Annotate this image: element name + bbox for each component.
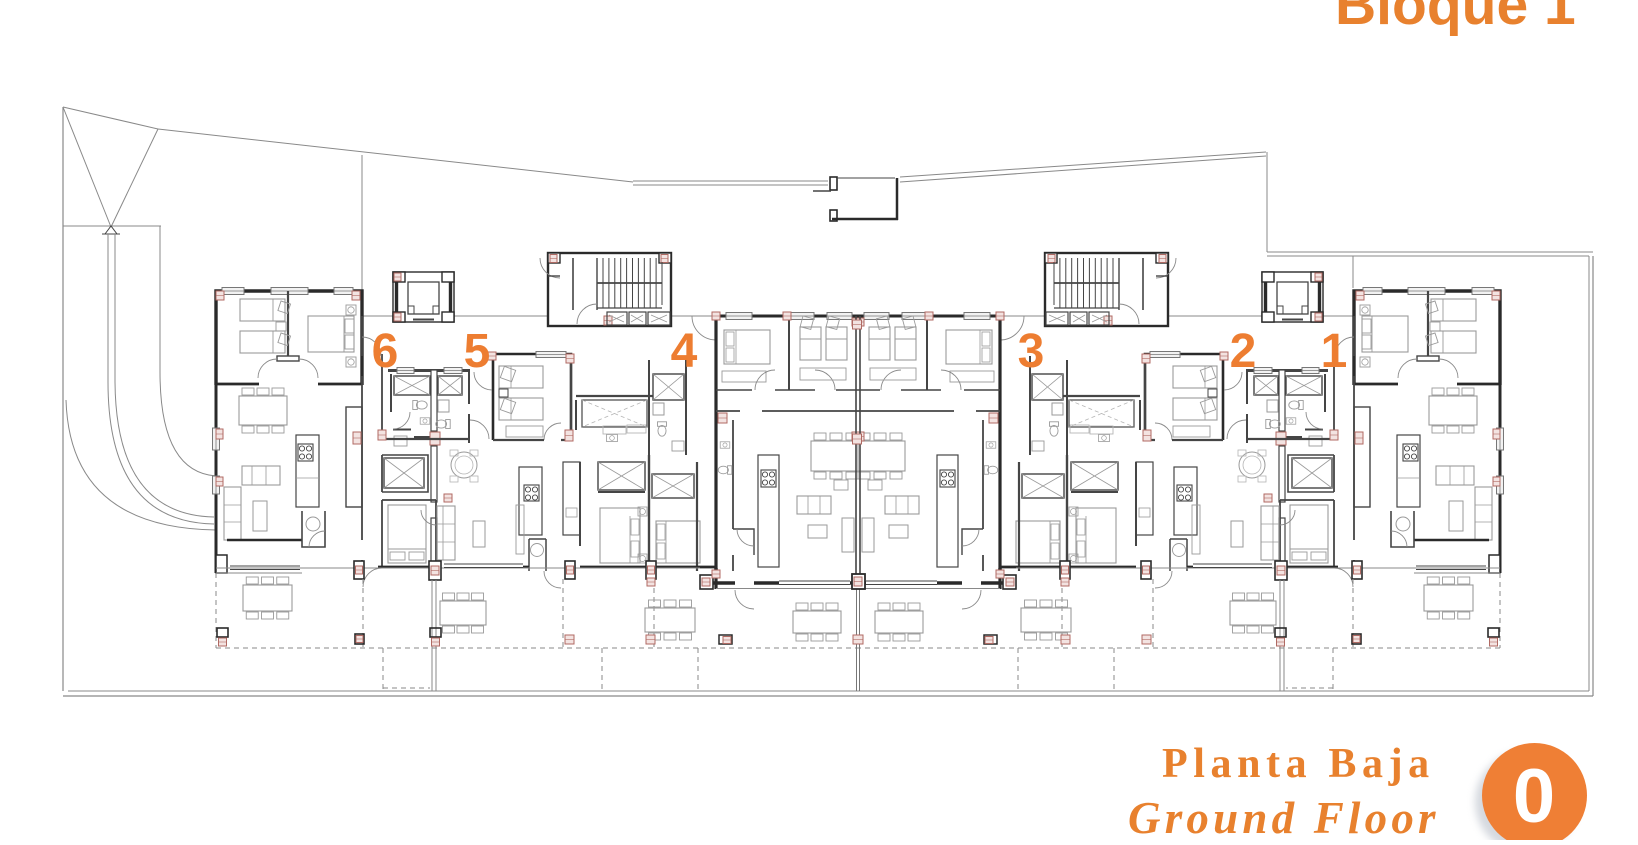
svg-text:Bloque 1: Bloque 1 (1335, 0, 1576, 37)
svg-text:Planta Baja: Planta Baja (1162, 741, 1435, 787)
svg-text:Ground Floor: Ground Floor (1128, 793, 1440, 840)
svg-text:5: 5 (464, 325, 491, 378)
svg-text:1: 1 (1321, 325, 1348, 378)
svg-text:6: 6 (372, 325, 399, 378)
svg-text:4: 4 (671, 325, 698, 378)
svg-text:0: 0 (1513, 754, 1555, 839)
svg-text:2: 2 (1230, 325, 1257, 378)
svg-text:3: 3 (1018, 325, 1045, 378)
